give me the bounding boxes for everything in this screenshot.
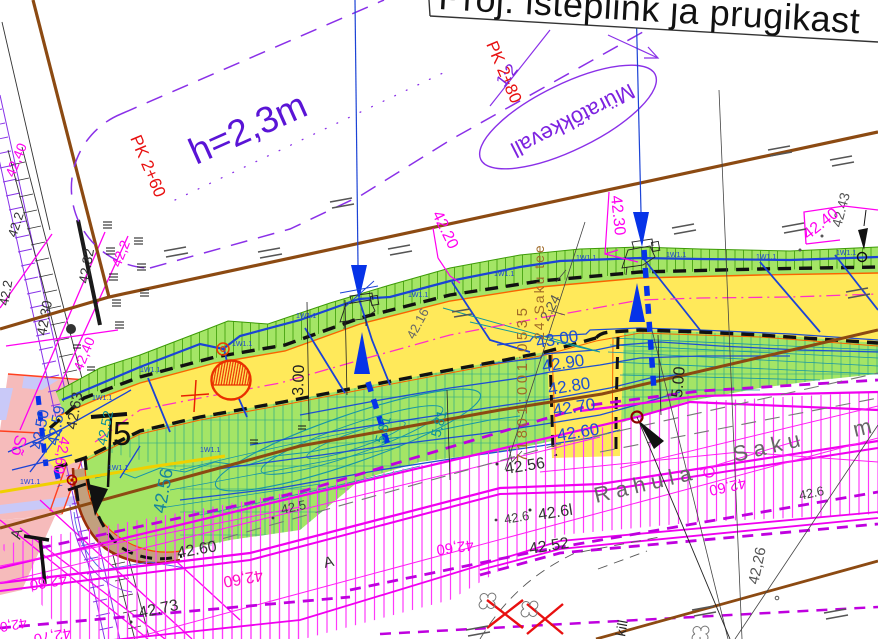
svg-text:3.00: 3.00 [290,364,308,396]
svg-text:1W1.1: 1W1.1 [20,479,40,486]
svg-text:1W1.1: 1W1.1 [666,252,686,259]
svg-text:24 Saku tee: 24 Saku tee [531,243,547,340]
svg-text:1W1.1: 1W1.1 [408,292,428,299]
svg-text:71801:001:0535: 71801:001:0535 [514,305,531,462]
svg-text:1W1.1: 1W1.1 [494,271,514,278]
svg-text:1W1.1: 1W1.1 [200,447,220,454]
svg-text:kill: kill [612,619,631,638]
svg-text:1W1.1: 1W1.1 [576,255,596,262]
svg-text:1W1.1: 1W1.1 [92,395,112,402]
svg-text:1W1.1: 1W1.1 [232,341,252,348]
svg-text:1W1.1: 1W1.1 [140,367,160,374]
svg-text:1W1.1: 1W1.1 [836,250,856,257]
svg-text:5.00: 5.00 [669,366,689,399]
svg-text:1W1.1: 1W1.1 [296,313,316,320]
svg-text:1W1.1: 1W1.1 [756,254,776,261]
svg-text:5: 5 [113,415,131,452]
svg-text:1W1.1: 1W1.1 [108,465,128,472]
